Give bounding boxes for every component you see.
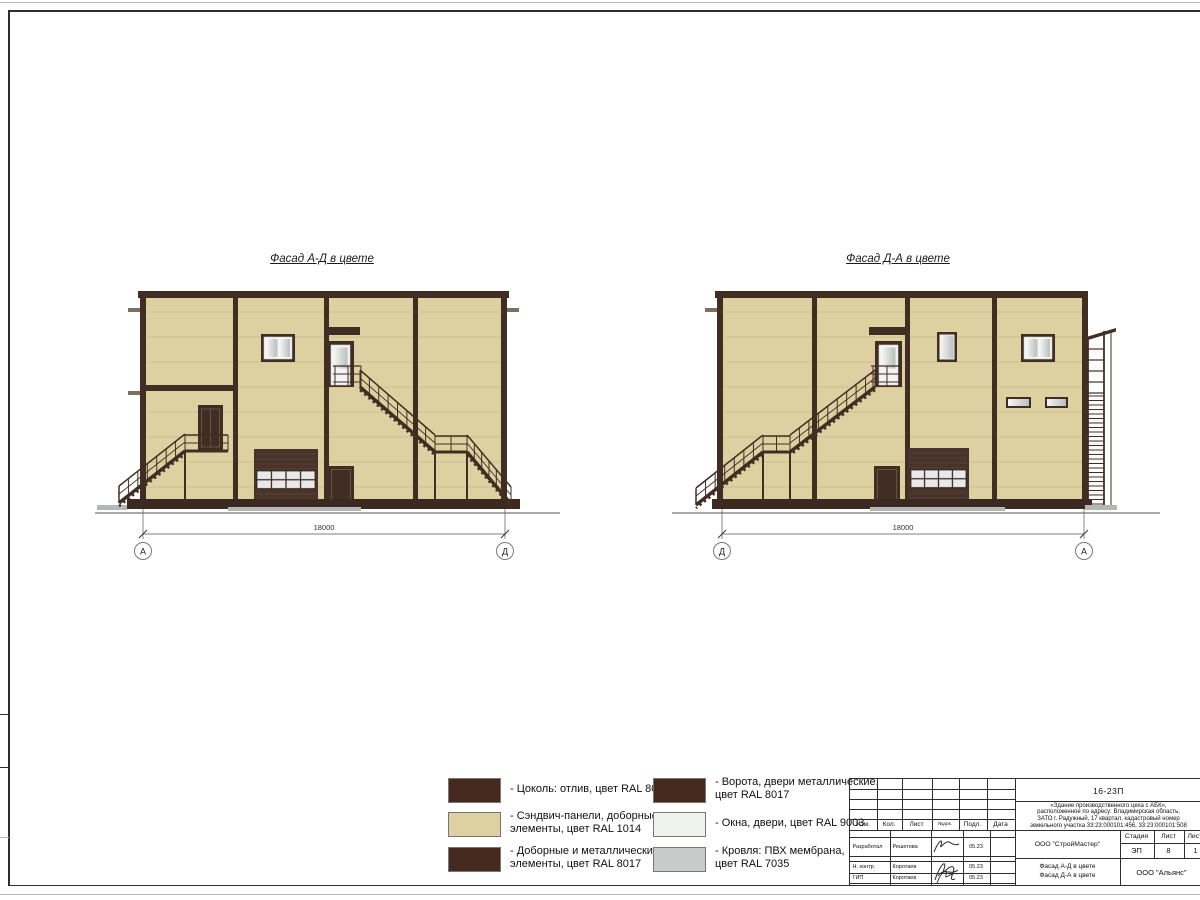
fire-ladder (1088, 331, 1111, 506)
pavement (870, 507, 1005, 511)
person-date: 05.23 (963, 873, 989, 883)
pavement (97, 505, 127, 510)
legend-swatch (653, 812, 706, 837)
pavement (228, 507, 361, 511)
title-block: Изм. Кол. Лист №док. Подл. Дата Разработ… (849, 778, 1200, 886)
window-glass (280, 339, 291, 357)
mullion (992, 298, 997, 507)
legend-label: - Кровля: ПВХ мембрана,цвет RAL 7035 (715, 845, 845, 871)
person-name: Решетова (891, 837, 932, 856)
mullion (812, 298, 817, 507)
facade-title-left: Фасад А-Д в цвете (247, 253, 397, 265)
dimension-value: 18000 (314, 523, 335, 532)
rev-col-podl: Подл. (959, 819, 987, 830)
parapet-bar (138, 291, 509, 298)
wall (717, 292, 1088, 507)
doc-number: 16-23П (1016, 781, 1200, 800)
flashing-tab (705, 308, 717, 312)
corner-left (717, 292, 723, 507)
legend-swatch (448, 812, 501, 837)
rev-col-izm: Изм. (850, 819, 877, 830)
stage-header: Стадия (1120, 831, 1154, 843)
window-glass (1026, 339, 1038, 357)
page-top-edge (0, 2, 1200, 3)
legend-label: - Цоколь: отлив, цвет RAL 8017 (510, 783, 670, 796)
person-date: 05.23 (963, 861, 989, 873)
mullion (413, 298, 418, 507)
corner-right (1082, 292, 1088, 507)
floor-band (146, 385, 233, 391)
org-name: ООО "Альянс" (1120, 858, 1200, 886)
legend-swatch (653, 847, 706, 872)
flashing-tab (507, 308, 519, 312)
door-canopy (324, 327, 360, 335)
window-glass (266, 339, 278, 357)
legend-swatch (653, 778, 706, 803)
signature (931, 836, 962, 857)
signature (931, 858, 962, 885)
legend-swatch (448, 778, 501, 803)
fold-mark (0, 714, 9, 716)
door-canopy (869, 327, 905, 335)
mullion (233, 298, 238, 507)
sheet-header: Лист (1154, 831, 1184, 843)
sheets-total-value: 1 (1184, 843, 1200, 858)
person-name: Коротаев (891, 873, 932, 883)
rev-col-list: Лист (902, 819, 932, 830)
dimension-value: 18000 (893, 523, 914, 532)
axis-label: А (140, 547, 146, 557)
person-role: ГИП (851, 873, 891, 883)
window-glass (1040, 339, 1051, 357)
fold-mark (0, 767, 9, 769)
drawing-subtitle: Фасад А-Д в цвете Фасад Д-А в цвете (1016, 863, 1120, 880)
flashing-tab (128, 391, 140, 395)
frame-top (8, 10, 1200, 12)
company-name: ООО "СтройМастер" (1016, 830, 1120, 858)
rev-col-kol: Кол. (877, 819, 902, 830)
sheet-number: 8 (1154, 843, 1184, 858)
rev-col-ndok: №док. (932, 819, 959, 830)
facade-drawing-a-d: 18000 А Д (95, 275, 580, 570)
facade-title-right: Фасад Д-А в цвете (823, 253, 973, 265)
wall (140, 292, 507, 507)
rev-col-data: Дата (987, 819, 1015, 830)
parapet-bar (715, 291, 1088, 298)
flashing-tab (128, 308, 140, 312)
legend-label: - Сэндвич-панели, доборныеэлементы, цвет… (510, 810, 658, 836)
legend-label: - Доборные и металлическиеэлементы, цвет… (510, 845, 659, 871)
facade-drawing-d-a: 18000 Д А (665, 275, 1165, 570)
stage-value: ЭП (1120, 843, 1154, 858)
window-glass (940, 335, 954, 359)
page-bottom-edge (0, 894, 1200, 895)
window-glass (1008, 399, 1029, 406)
fold-mark (0, 837, 9, 839)
person-date: 05.23 (963, 837, 989, 856)
person-name: Коротаев (891, 861, 932, 873)
person-role: Н. контр. (851, 861, 891, 873)
frame-left (8, 10, 10, 886)
legend-label: - Окна, двери, цвет RAL 9003 (715, 817, 864, 830)
legend-swatch (448, 847, 501, 872)
axis-label: Д (502, 547, 508, 557)
sheets-total-header: Листов (1184, 831, 1200, 843)
project-description: «Здание производственного цеха с АБК», р… (1016, 803, 1200, 831)
window-glass (1047, 399, 1066, 406)
corner-right (501, 292, 507, 507)
pavement (1085, 505, 1117, 510)
axis-label: А (1081, 547, 1087, 557)
person-role: Разработал (851, 837, 891, 856)
axis-label: Д (719, 547, 725, 557)
